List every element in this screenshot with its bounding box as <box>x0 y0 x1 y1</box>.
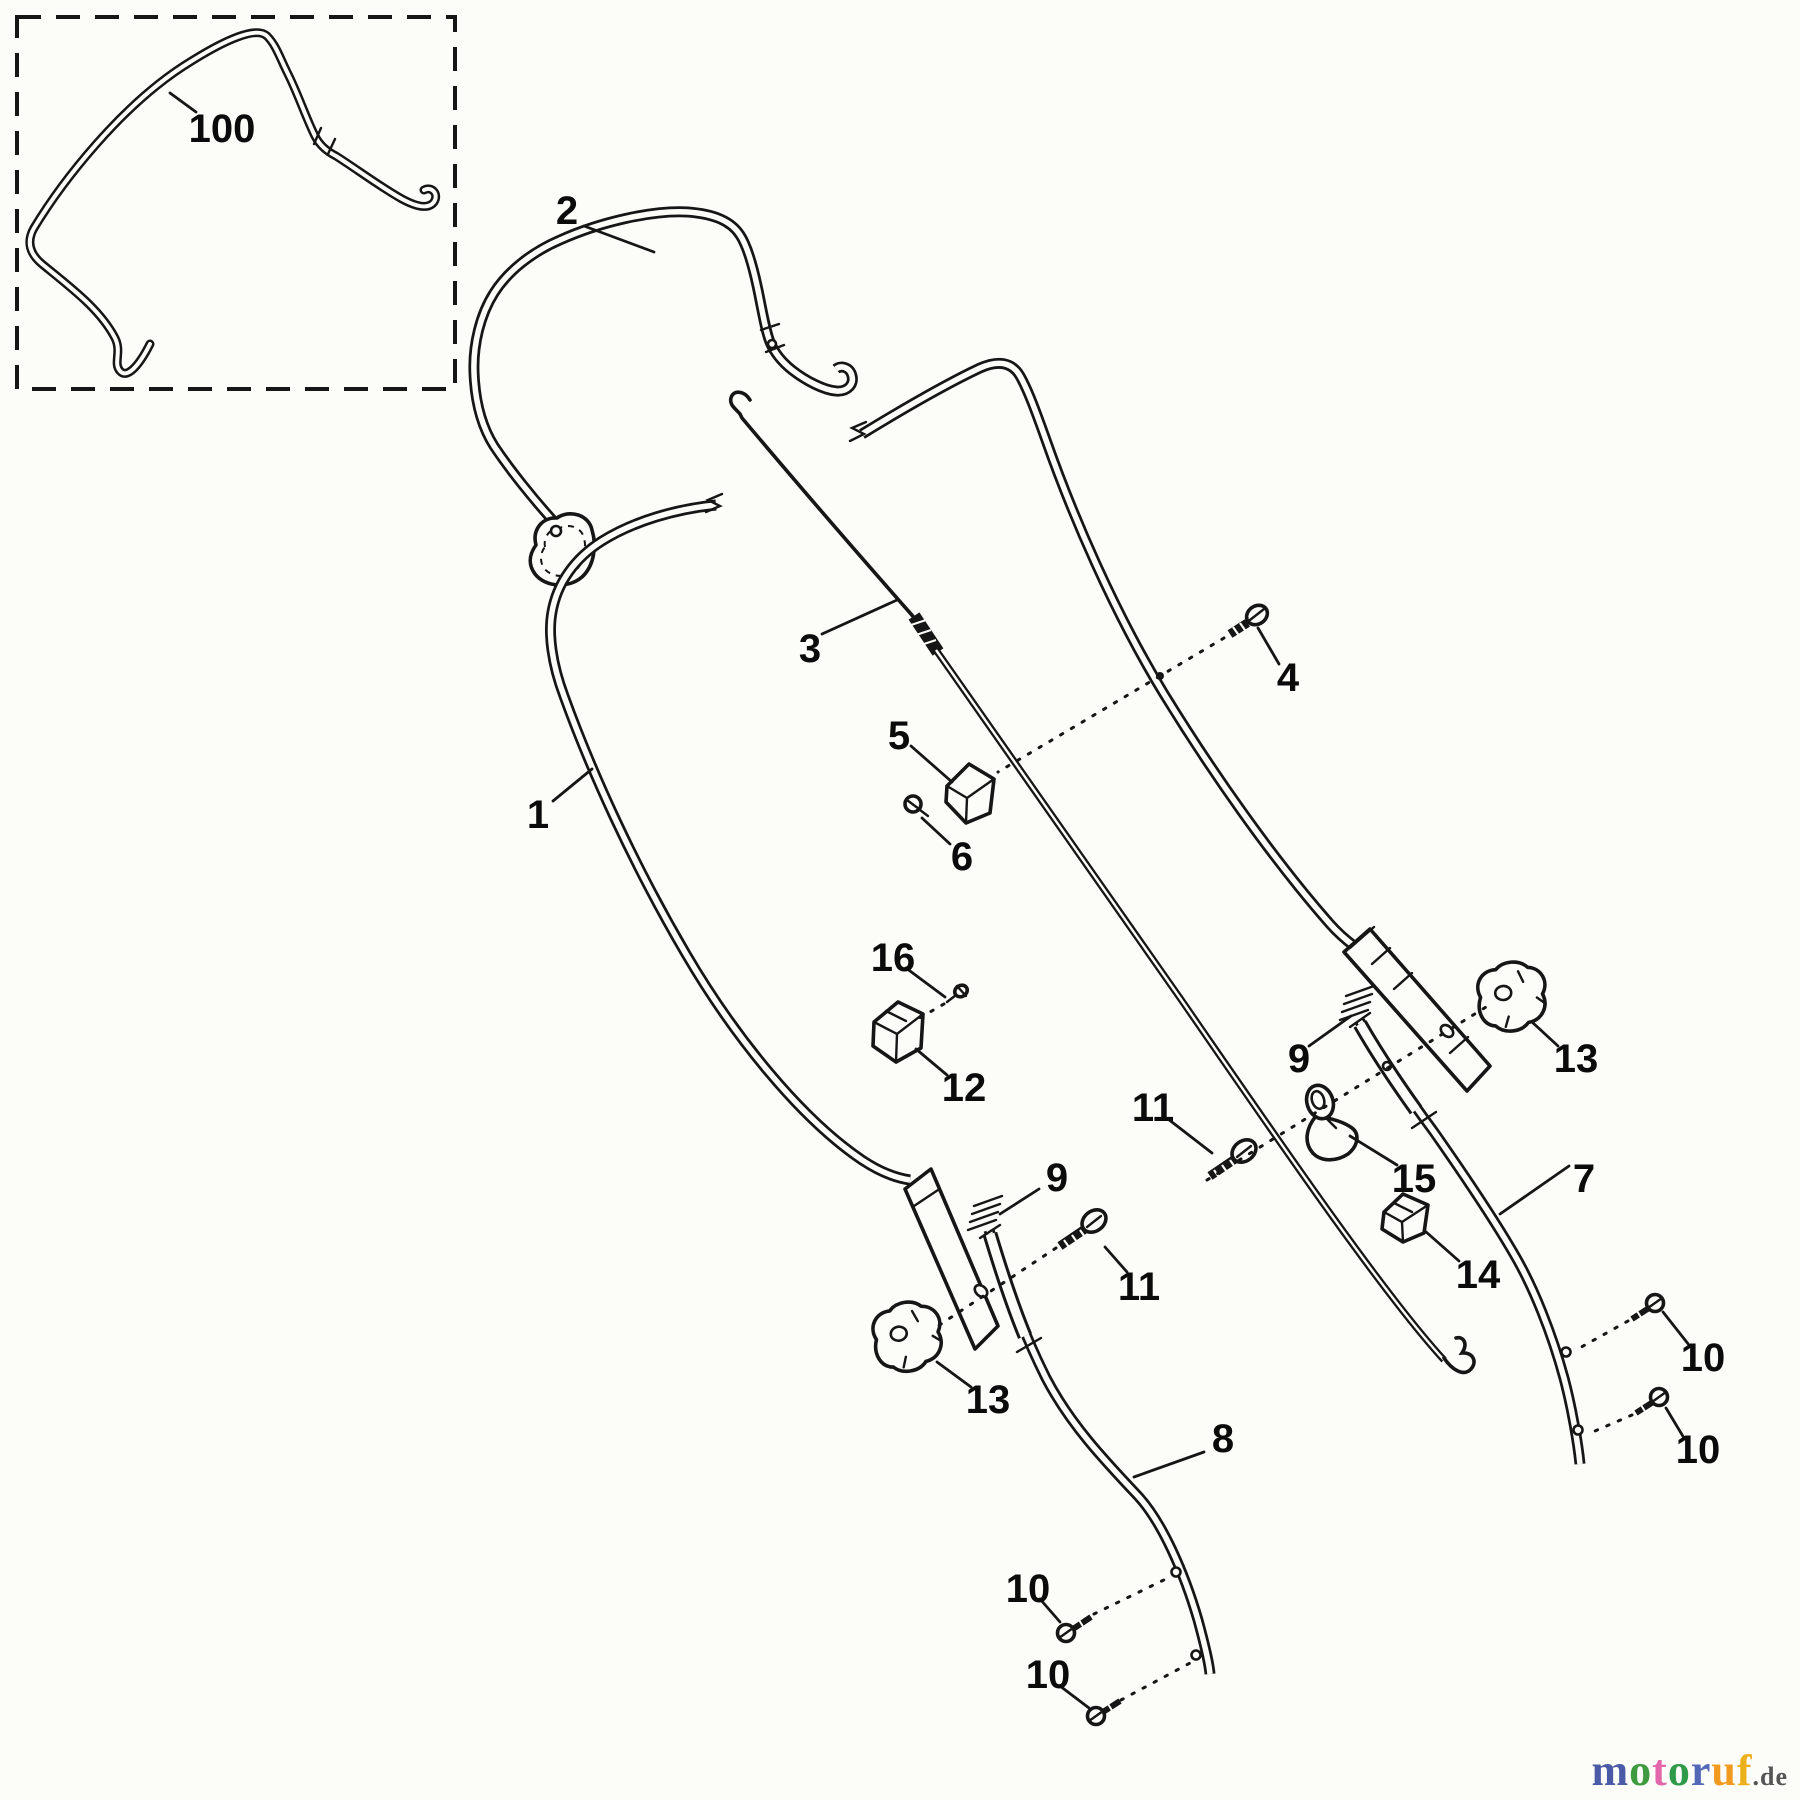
watermark-letter: o <box>1629 1746 1652 1795</box>
parts-diagram-page: 1002314561612991111157141313810101010 mo… <box>0 0 1800 1800</box>
part-label-10-left-top: 10 <box>1006 1567 1051 1611</box>
watermark-letter: o <box>1668 1746 1691 1795</box>
leader-9-right <box>1309 1016 1351 1046</box>
part-label-10-right-bottom: 10 <box>1676 1428 1721 1472</box>
leader-1 <box>553 769 592 801</box>
leader-7 <box>1500 1166 1569 1214</box>
part-label-15: 15 <box>1392 1157 1437 1201</box>
part-10-screw-left-bottom <box>1088 1701 1121 1725</box>
handle-fitting-pin <box>768 340 776 348</box>
part-label-5: 5 <box>888 714 910 758</box>
part-10-screw-right-top <box>1632 1295 1664 1320</box>
part-label-3: 3 <box>799 627 821 671</box>
part-14-square-nut <box>1382 1194 1428 1242</box>
part-2-bail-handle <box>474 212 852 585</box>
leader-11-right <box>1168 1119 1212 1153</box>
part-12-clip <box>873 1002 923 1062</box>
part-label-10-right-top: 10 <box>1681 1336 1726 1380</box>
axis-screw10-left-bottom <box>1121 1662 1192 1700</box>
watermark-letter: m <box>1592 1746 1630 1795</box>
part-11-bolt-left <box>1060 1205 1110 1250</box>
part-label-1: 1 <box>527 793 549 837</box>
part-16-screw <box>947 983 969 1002</box>
part-label-10-left-bottom: 10 <box>1026 1653 1071 1697</box>
part-label-9-left: 9 <box>1046 1156 1068 1200</box>
grip-paddle-pivot <box>551 526 561 536</box>
leader-2 <box>584 226 654 252</box>
tube-screw-hole <box>1562 1348 1571 1357</box>
watermark-letter: u <box>1711 1746 1736 1795</box>
part-15-clamp-lever <box>1302 1082 1357 1160</box>
part-10-screw-right-bottom <box>1636 1389 1668 1414</box>
tube-screw-hole <box>1574 1426 1583 1435</box>
part-label-7: 7 <box>1573 1157 1595 1201</box>
axis-screw10-right-bottom <box>1588 1415 1632 1434</box>
axis-screw10-right-top <box>1576 1321 1628 1350</box>
part-label-2: 2 <box>556 189 578 233</box>
assembly-axis-lines <box>914 638 1632 1700</box>
part-label-14: 14 <box>1456 1253 1501 1297</box>
cable-bottom-hook <box>1444 1338 1474 1373</box>
tube-screw-hole <box>1192 1651 1201 1660</box>
part-13-knob-right <box>1475 959 1550 1034</box>
leader-5 <box>911 746 952 782</box>
part-label-11-right: 11 <box>1132 1086 1174 1130</box>
part-label-4: 4 <box>1277 656 1300 700</box>
leader-15 <box>1350 1136 1397 1165</box>
part-label-13-right: 13 <box>1554 1037 1599 1081</box>
part-10-screw-left-top <box>1058 1617 1092 1642</box>
inset-dashed-box <box>17 17 455 389</box>
tube-screw-hole <box>1172 1568 1181 1577</box>
part-13-knob-left <box>869 1297 948 1376</box>
watermark-letter: f <box>1737 1746 1753 1795</box>
part-4-screw <box>1230 601 1271 637</box>
part-1-right-end-bracket <box>1344 927 1490 1091</box>
watermark-letter: r <box>1691 1746 1712 1795</box>
part-label-8: 8 <box>1212 1417 1234 1461</box>
leader-6 <box>922 818 950 844</box>
part-label-11-left: 11 <box>1118 1265 1160 1309</box>
leader-8 <box>1134 1452 1204 1477</box>
axis-screw10-left-top <box>1094 1576 1172 1614</box>
cable-sheath <box>936 650 1444 1360</box>
axis-screw4-clamp5 <box>998 638 1224 772</box>
motoruf-watermark: motoruf.de <box>1592 1745 1788 1796</box>
part-6-screw <box>905 796 928 816</box>
cable-inner-wire <box>731 392 918 622</box>
part-100-handle-wire <box>30 33 436 374</box>
part-label-6: 6 <box>951 835 973 879</box>
part-label-16: 16 <box>871 936 916 980</box>
part-9-spring-left <box>968 1196 1002 1230</box>
leader-3 <box>822 600 897 634</box>
part-1-upper-handle <box>551 363 1355 1180</box>
part-label-13-left: 13 <box>966 1378 1011 1422</box>
parts-diagram-canvas: 1002314561612991111157141313810101010 <box>0 0 1800 1800</box>
leader-lines <box>170 93 1689 1708</box>
leader-9-left <box>1000 1189 1039 1214</box>
leader-4 <box>1258 628 1279 664</box>
watermark-letter: t <box>1652 1746 1668 1795</box>
part-5-cable-clamp <box>946 764 994 823</box>
leader-14 <box>1425 1231 1459 1261</box>
part-label-12: 12 <box>942 1066 987 1110</box>
part-label-9-right: 9 <box>1288 1037 1310 1081</box>
part-number-labels: 1002314561612991111157141313810101010 <box>189 107 1726 1697</box>
part-label-100: 100 <box>189 107 256 151</box>
watermark-suffix: .de <box>1753 1762 1789 1791</box>
